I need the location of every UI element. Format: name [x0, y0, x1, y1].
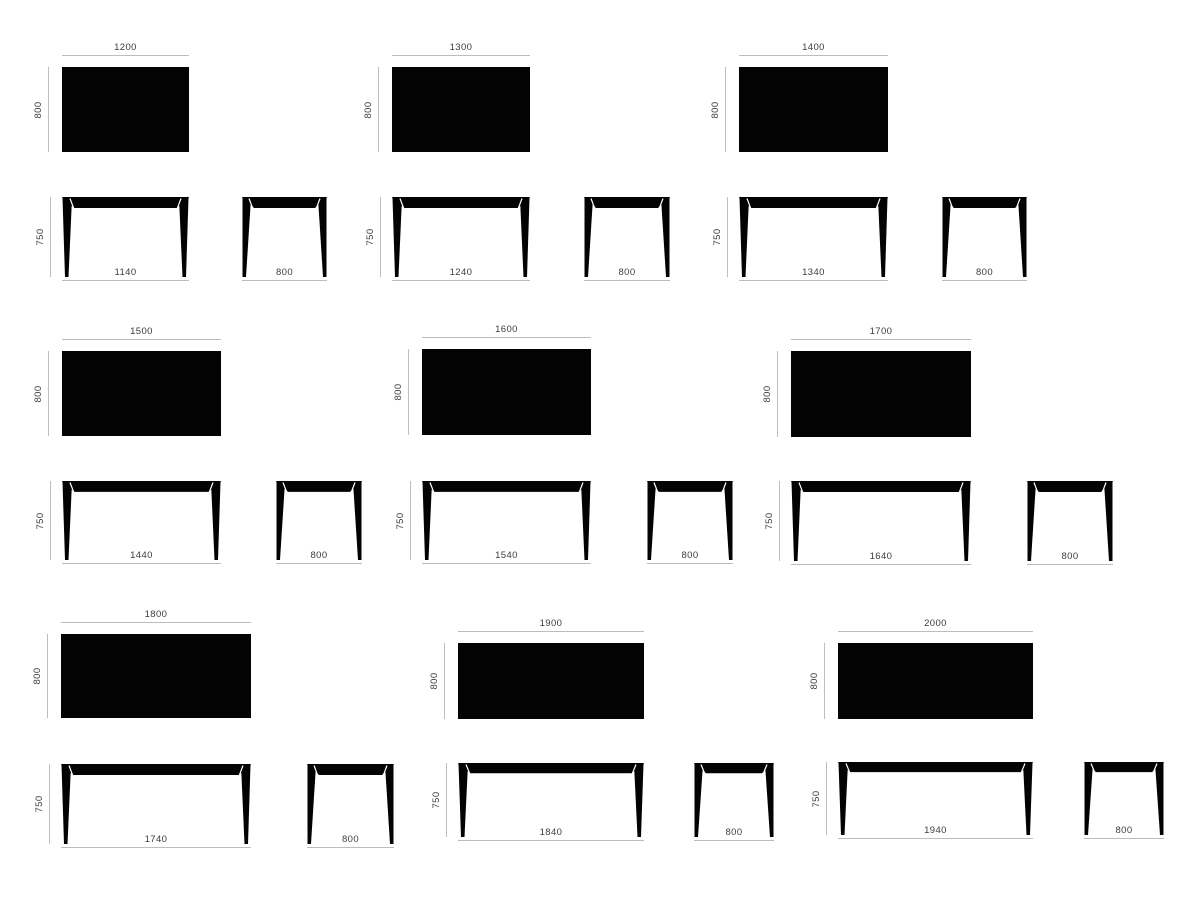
table-side-view [647, 481, 733, 560]
dimension-line [444, 643, 445, 719]
dimension-line [47, 634, 48, 718]
tabletop-top-view [838, 643, 1033, 719]
feet-span-dimension: 1240 [392, 268, 530, 281]
depth-dimension: 800 [28, 634, 48, 718]
tabletop-top-view [458, 643, 644, 719]
technical-drawing-canvas: 1200800750114080013008007501240800140080… [0, 0, 1200, 900]
depth-dimension-value: 800 [34, 101, 44, 118]
dimension-line [727, 197, 728, 277]
depth-dimension-value: 800 [430, 672, 440, 689]
dimension-line [408, 349, 409, 435]
tabletop-top-view [62, 67, 189, 152]
depth-dimension: 800 [389, 349, 409, 435]
top-width-dimension: 1600 [422, 325, 591, 338]
side-span-dimension: 800 [584, 268, 670, 281]
side-span-dimension: 800 [276, 551, 362, 564]
table-front-view [62, 481, 221, 560]
depth-dimension: 800 [359, 67, 379, 152]
height-dimension-value: 750 [396, 512, 406, 529]
height-dimension-value: 750 [765, 512, 775, 529]
top-width-dimension-value: 1800 [61, 610, 251, 620]
table-front-view [392, 197, 530, 277]
side-span-dimension-value: 800 [1027, 552, 1113, 562]
height-dimension: 750 [760, 481, 780, 561]
dimension-line [276, 563, 362, 564]
dimension-line [48, 351, 49, 436]
height-dimension-value: 750 [713, 228, 723, 245]
dimension-line [446, 763, 447, 837]
side-span-dimension: 800 [647, 551, 733, 564]
dimension-line [380, 197, 381, 277]
tabletop-top-view [739, 67, 888, 152]
depth-dimension-value: 800 [394, 383, 404, 400]
feet-span-dimension-value: 1840 [458, 828, 644, 838]
height-dimension: 750 [391, 481, 411, 560]
table-side-view [307, 764, 394, 844]
side-span-dimension-value: 800 [242, 268, 327, 278]
table-front-view [458, 763, 644, 837]
table-front-view [791, 481, 971, 561]
tabletop-top-view [422, 349, 591, 435]
dimension-line [838, 838, 1033, 839]
side-span-dimension: 800 [307, 835, 394, 848]
table-front-view [62, 197, 189, 277]
dimension-line [647, 563, 733, 564]
height-dimension-value: 750 [36, 512, 46, 529]
feet-span-dimension-value: 1340 [739, 268, 888, 278]
dimension-line [422, 337, 591, 338]
height-dimension: 750 [361, 197, 381, 277]
top-width-dimension-value: 1600 [422, 325, 591, 335]
top-width-dimension: 1900 [458, 619, 644, 632]
height-dimension: 750 [31, 197, 51, 277]
feet-span-dimension-value: 1640 [791, 552, 971, 562]
dimension-line [307, 847, 394, 848]
dimension-line [50, 481, 51, 560]
table-front-view [422, 481, 591, 560]
dimension-line [1027, 564, 1113, 565]
feet-span-dimension-value: 1740 [61, 835, 251, 845]
top-width-dimension: 1400 [739, 43, 888, 56]
side-span-dimension-value: 800 [307, 835, 394, 845]
table-side-view [694, 763, 774, 837]
height-dimension-value: 750 [36, 228, 46, 245]
dimension-line [791, 339, 971, 340]
side-span-dimension: 800 [1027, 552, 1113, 565]
height-dimension: 750 [807, 762, 827, 835]
top-width-dimension: 1800 [61, 610, 251, 623]
side-span-dimension: 800 [1084, 826, 1164, 839]
dimension-line [392, 280, 530, 281]
table-side-view [242, 197, 327, 277]
depth-dimension: 800 [29, 351, 49, 436]
depth-dimension-value: 800 [810, 672, 820, 689]
table-front-view [61, 764, 251, 844]
feet-span-dimension-value: 1540 [422, 551, 591, 561]
top-width-dimension: 1200 [62, 43, 189, 56]
dimension-line [942, 280, 1027, 281]
feet-span-dimension-value: 1140 [62, 268, 189, 278]
top-width-dimension-value: 1500 [62, 327, 221, 337]
height-dimension: 750 [708, 197, 728, 277]
dimension-line [458, 631, 644, 632]
height-dimension: 750 [31, 481, 51, 560]
tabletop-top-view [61, 634, 251, 718]
dimension-line [694, 840, 774, 841]
dimension-line [725, 67, 726, 152]
dimension-line [739, 280, 888, 281]
depth-dimension-value: 800 [33, 667, 43, 684]
top-width-dimension-value: 1300 [392, 43, 530, 53]
feet-span-dimension: 1640 [791, 552, 971, 565]
dimension-line [392, 55, 530, 56]
dimension-line [1084, 838, 1164, 839]
dimension-line [50, 197, 51, 277]
dimension-line [779, 481, 780, 561]
dimension-line [61, 622, 251, 623]
top-width-dimension: 1300 [392, 43, 530, 56]
dimension-line [584, 280, 670, 281]
side-span-dimension: 800 [942, 268, 1027, 281]
tabletop-top-view [62, 351, 221, 436]
side-span-dimension: 800 [242, 268, 327, 281]
dimension-line [242, 280, 327, 281]
top-width-dimension-value: 1200 [62, 43, 189, 53]
height-dimension-value: 750 [366, 228, 376, 245]
depth-dimension: 800 [706, 67, 726, 152]
table-side-view [276, 481, 362, 560]
feet-span-dimension-value: 1940 [838, 826, 1033, 836]
table-front-view [739, 197, 888, 277]
side-span-dimension-value: 800 [942, 268, 1027, 278]
feet-span-dimension: 1540 [422, 551, 591, 564]
tabletop-top-view [791, 351, 971, 437]
dimension-line [422, 563, 591, 564]
feet-span-dimension-value: 1440 [62, 551, 221, 561]
depth-dimension: 800 [29, 67, 49, 152]
side-span-dimension: 800 [694, 828, 774, 841]
side-span-dimension-value: 800 [694, 828, 774, 838]
top-width-dimension: 1500 [62, 327, 221, 340]
top-width-dimension: 2000 [838, 619, 1033, 632]
side-span-dimension-value: 800 [584, 268, 670, 278]
height-dimension: 750 [30, 764, 50, 844]
depth-dimension: 800 [425, 643, 445, 719]
dimension-line [62, 563, 221, 564]
table-side-view [1027, 481, 1113, 561]
depth-dimension-value: 800 [364, 101, 374, 118]
feet-span-dimension: 1140 [62, 268, 189, 281]
dimension-line [824, 643, 825, 719]
dimension-line [458, 840, 644, 841]
depth-dimension: 800 [758, 351, 778, 437]
top-width-dimension-value: 1700 [791, 327, 971, 337]
dimension-line [61, 847, 251, 848]
dimension-line [378, 67, 379, 152]
dimension-line [62, 55, 189, 56]
table-side-view [584, 197, 670, 277]
depth-dimension: 800 [805, 643, 825, 719]
height-dimension-value: 750 [812, 790, 822, 807]
dimension-line [62, 339, 221, 340]
dimension-line [410, 481, 411, 560]
feet-span-dimension: 1340 [739, 268, 888, 281]
side-span-dimension-value: 800 [1084, 826, 1164, 836]
tabletop-top-view [392, 67, 530, 152]
top-width-dimension-value: 2000 [838, 619, 1033, 629]
dimension-line [739, 55, 888, 56]
height-dimension-value: 750 [35, 795, 45, 812]
feet-span-dimension: 1440 [62, 551, 221, 564]
side-span-dimension-value: 800 [647, 551, 733, 561]
dimension-line [62, 280, 189, 281]
depth-dimension-value: 800 [763, 385, 773, 402]
dimension-line [49, 764, 50, 844]
table-side-view [942, 197, 1027, 277]
feet-span-dimension: 1940 [838, 826, 1033, 839]
top-width-dimension-value: 1900 [458, 619, 644, 629]
side-span-dimension-value: 800 [276, 551, 362, 561]
height-dimension-value: 750 [432, 791, 442, 808]
dimension-line [48, 67, 49, 152]
feet-span-dimension: 1740 [61, 835, 251, 848]
dimension-line [838, 631, 1033, 632]
dimension-line [826, 762, 827, 835]
depth-dimension-value: 800 [34, 385, 44, 402]
feet-span-dimension: 1840 [458, 828, 644, 841]
dimension-line [791, 564, 971, 565]
height-dimension: 750 [427, 763, 447, 837]
top-width-dimension: 1700 [791, 327, 971, 340]
feet-span-dimension-value: 1240 [392, 268, 530, 278]
depth-dimension-value: 800 [711, 101, 721, 118]
dimension-line [777, 351, 778, 437]
top-width-dimension-value: 1400 [739, 43, 888, 53]
